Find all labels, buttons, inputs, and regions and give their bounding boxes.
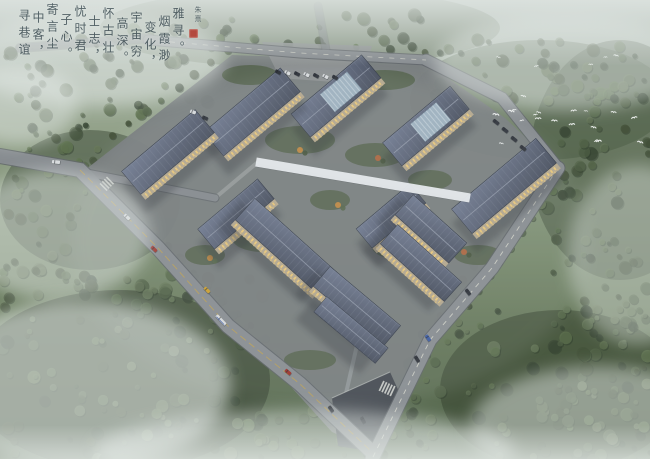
tree <box>397 32 409 44</box>
tree <box>600 143 609 152</box>
tree <box>61 141 73 153</box>
tree <box>559 126 570 137</box>
rendering-canvas: 朱熹 雅寻。 烟霞渺 变化， 宇宙穷 高深。 怀古壮 士志， 忧时君 子心。 寄… <box>0 0 650 459</box>
tree <box>69 127 82 140</box>
tree <box>557 341 563 347</box>
tree <box>408 8 421 21</box>
street-tree <box>94 146 101 153</box>
tree <box>341 11 350 20</box>
tree <box>409 407 418 416</box>
tree <box>560 326 564 330</box>
tree <box>471 383 476 388</box>
tree <box>80 113 85 118</box>
tree <box>27 147 31 151</box>
tree <box>599 341 608 350</box>
tree <box>83 122 89 128</box>
tree <box>389 20 398 29</box>
tree <box>466 390 471 395</box>
street-tree <box>125 120 131 126</box>
street-tree <box>109 132 116 139</box>
tree <box>557 139 564 146</box>
tree <box>621 124 630 133</box>
street-tree <box>386 45 395 54</box>
haze <box>70 70 590 410</box>
tree <box>489 383 495 389</box>
tree <box>357 12 370 25</box>
tree <box>596 125 602 131</box>
tree <box>588 161 596 169</box>
tree <box>579 139 589 149</box>
tree <box>586 117 593 124</box>
fog-layer <box>0 10 650 459</box>
tree <box>367 26 377 36</box>
tree <box>198 18 208 28</box>
tree <box>378 35 389 46</box>
tree <box>526 362 538 374</box>
tree <box>407 42 416 51</box>
tree <box>575 161 586 172</box>
street-tree <box>252 36 258 42</box>
street-tree <box>142 107 151 116</box>
tree <box>4 292 15 303</box>
aerial-scene <box>0 0 650 459</box>
tree <box>229 16 235 22</box>
tree <box>577 347 590 360</box>
